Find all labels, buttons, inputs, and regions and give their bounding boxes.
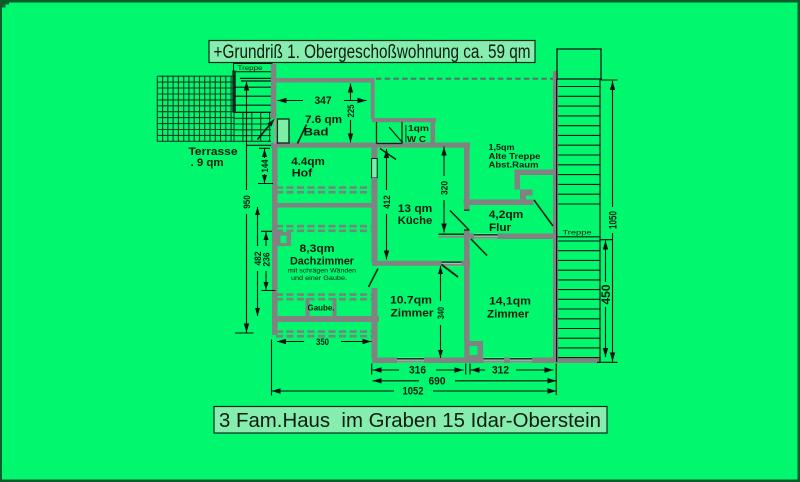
svg-text:144: 144 (260, 159, 270, 173)
svg-text:Alte Treppe: Alte Treppe (489, 152, 542, 161)
svg-text:1052: 1052 (403, 386, 424, 398)
svg-text:Treppe: Treppe (238, 65, 263, 72)
svg-text:3 Fam.Haus im Graben 15 Idar-: 3 Fam.Haus im Graben 15 Idar-Oberstein (219, 409, 601, 432)
svg-text:347: 347 (315, 95, 332, 107)
svg-text:Küche: Küche (398, 215, 433, 227)
svg-text:1050: 1050 (608, 211, 620, 229)
svg-text:10.7qm: 10.7qm (390, 295, 432, 307)
svg-text:14,1qm: 14,1qm (489, 296, 531, 308)
svg-text:8,3qm: 8,3qm (300, 243, 335, 255)
svg-text:316: 316 (409, 365, 426, 377)
svg-text:13 qm: 13 qm (398, 203, 433, 215)
svg-text:Zimmer: Zimmer (487, 309, 530, 321)
svg-text:236: 236 (261, 253, 271, 267)
svg-text:Bad: Bad (304, 127, 329, 139)
svg-text:350: 350 (316, 337, 329, 347)
svg-text:950: 950 (242, 195, 252, 209)
svg-text:Zimmer: Zimmer (391, 308, 435, 320)
svg-text:mit schrägen Wänden: mit schrägen Wänden (288, 268, 356, 275)
svg-text:1,5qm: 1,5qm (489, 143, 515, 152)
svg-text:690: 690 (429, 376, 446, 388)
svg-text:. 9 qm: . 9 qm (191, 157, 224, 169)
svg-text:340: 340 (436, 307, 446, 319)
svg-text:Gaube.: Gaube. (308, 304, 335, 313)
svg-text:4.4qm: 4.4qm (291, 156, 325, 168)
svg-text:412: 412 (382, 195, 392, 209)
svg-text:und einer Gaube.: und einer Gaube. (291, 275, 347, 282)
svg-text:4,2qm: 4,2qm (489, 209, 524, 221)
svg-text:450: 450 (601, 285, 613, 305)
svg-text:Dachzimmer: Dachzimmer (290, 256, 355, 268)
svg-text:Hof: Hof (292, 168, 313, 180)
svg-text:1qm: 1qm (408, 124, 429, 133)
svg-text:+Grundriß 1. Obergeschoßwohnun: +Grundriß 1. Obergeschoßwohnung ca. 59 q… (214, 42, 531, 63)
svg-text:Treppe: Treppe (563, 230, 593, 237)
svg-text:Flur: Flur (489, 222, 512, 234)
svg-text:7.6 qm: 7.6 qm (305, 114, 342, 126)
svg-text:320: 320 (439, 181, 449, 195)
svg-text:312: 312 (492, 365, 509, 377)
svg-text:225: 225 (346, 105, 356, 118)
svg-text:W C: W C (407, 135, 426, 144)
svg-text:Abst.Raum: Abst.Raum (489, 161, 539, 170)
